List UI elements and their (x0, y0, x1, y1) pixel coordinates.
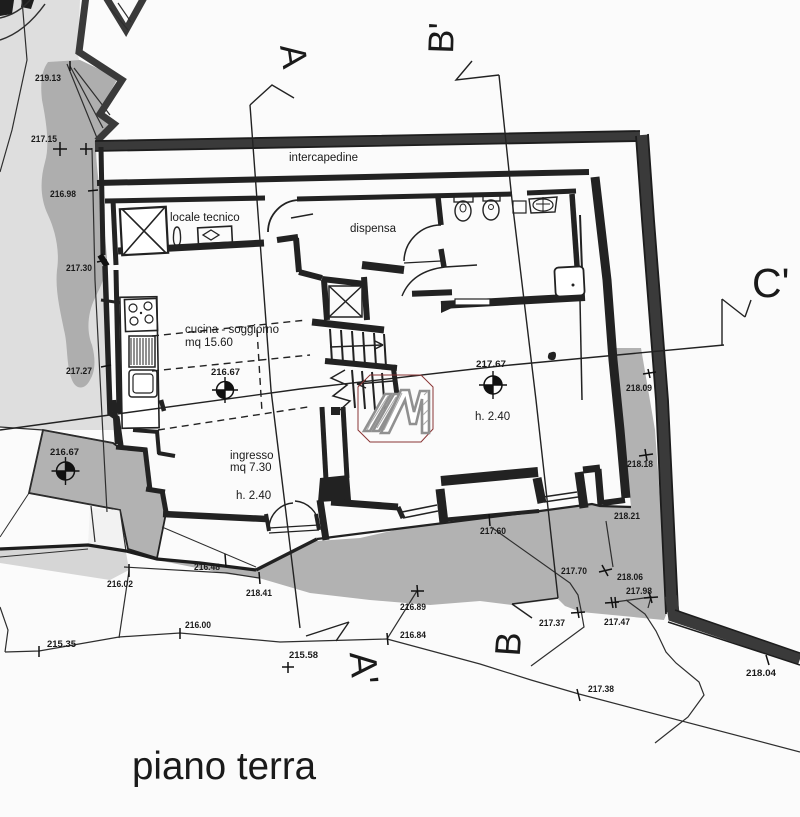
svg-text:217.47: 217.47 (604, 617, 630, 627)
svg-text:A': A' (341, 650, 386, 686)
svg-text:h. 2.40: h. 2.40 (236, 490, 271, 502)
svg-text:217.67: 217.67 (476, 359, 506, 369)
svg-text:C': C' (752, 260, 789, 306)
svg-text:216.67: 216.67 (211, 367, 240, 377)
svg-text:216.67: 216.67 (50, 447, 79, 457)
svg-text:215.35: 215.35 (47, 639, 76, 649)
svg-text:216.00: 216.00 (185, 620, 211, 630)
svg-text:217.15: 217.15 (31, 134, 57, 144)
svg-text:B: B (487, 631, 530, 658)
svg-text:218.09: 218.09 (626, 383, 652, 393)
svg-text:217.98: 217.98 (626, 586, 652, 596)
svg-text:218.41: 218.41 (246, 588, 272, 598)
svg-text:218.18: 218.18 (627, 459, 653, 469)
svg-text:218.04: 218.04 (746, 668, 776, 678)
svg-text:217.38: 217.38 (588, 684, 614, 694)
svg-text:h. 2.40: h. 2.40 (475, 411, 510, 423)
svg-text:216.98: 216.98 (50, 189, 76, 199)
svg-text:215.58: 215.58 (289, 650, 318, 660)
svg-text:mq 7.30: mq 7.30 (230, 462, 272, 474)
svg-text:216.02: 216.02 (107, 579, 133, 589)
svg-text:217.27: 217.27 (66, 366, 92, 376)
svg-text:218.21: 218.21 (614, 511, 640, 521)
svg-text:216.84: 216.84 (400, 630, 426, 640)
svg-text:217.37: 217.37 (539, 618, 565, 628)
svg-text:cucina - soggiorno: cucina - soggiorno (185, 324, 279, 336)
svg-text:mq 15.60: mq 15.60 (185, 337, 233, 349)
svg-text:217.60: 217.60 (480, 526, 506, 536)
svg-text:216.48: 216.48 (194, 562, 220, 572)
svg-text:ingresso: ingresso (230, 450, 273, 462)
svg-text:218.06: 218.06 (617, 572, 643, 582)
svg-text:piano terra: piano terra (132, 745, 317, 788)
svg-text:dispensa: dispensa (350, 223, 397, 235)
svg-text:217.30: 217.30 (66, 263, 92, 273)
svg-text:216.89: 216.89 (400, 602, 426, 612)
svg-text:219.13: 219.13 (35, 73, 61, 83)
svg-text:locale tecnico: locale tecnico (170, 212, 240, 224)
svg-text:B': B' (420, 22, 462, 54)
svg-text:217.70: 217.70 (561, 566, 587, 576)
svg-text:intercapedine: intercapedine (289, 152, 358, 164)
